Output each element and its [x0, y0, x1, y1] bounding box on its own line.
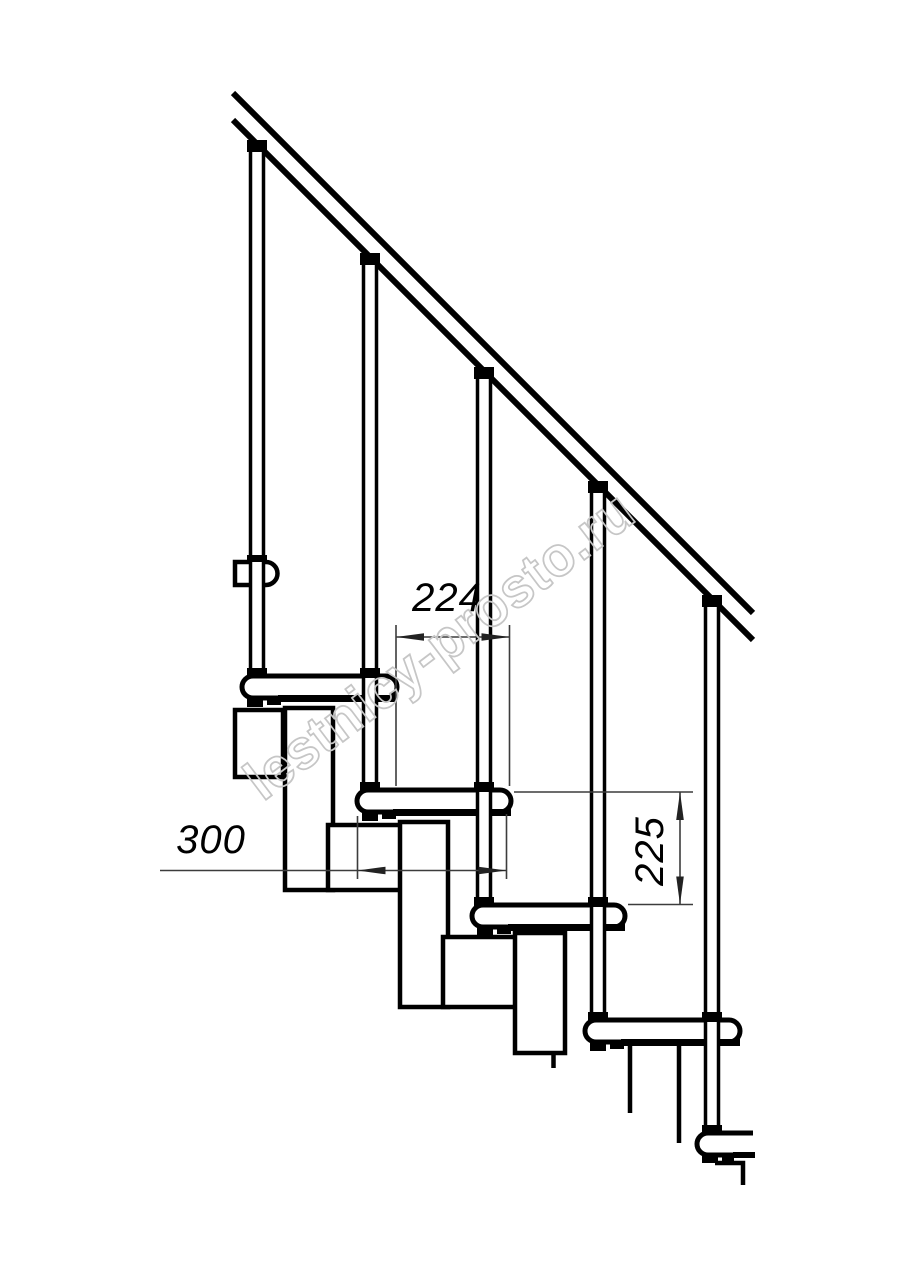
dim300-arrow-right [479, 867, 507, 875]
baluster3-foot [474, 897, 494, 906]
baluster1-bracket-collar [247, 555, 267, 562]
tread2-clamp-b [382, 811, 396, 819]
tread2-clamp-a [362, 811, 378, 821]
tread4-underband [621, 1039, 740, 1046]
baluster2-foot [360, 782, 380, 791]
tread-5-clipped [697, 1133, 753, 1155]
handrail [233, 93, 753, 640]
baluster5-foot [702, 1125, 722, 1134]
tread5-clamp-b [722, 1154, 734, 1161]
baluster-4 [592, 491, 605, 1020]
dim300-label: 300 [176, 818, 246, 862]
tread4-clamp-a [590, 1041, 606, 1051]
baluster4-tread3-collar [588, 897, 608, 907]
tread1-clamp-b [267, 697, 281, 705]
handrail-upper-line [233, 93, 753, 613]
tread1-clamp-a [247, 697, 263, 707]
module-column-under-tread3 [515, 933, 565, 1053]
staircase-technical-drawing: 224 300 225 lestnicy-prosto.ru [0, 0, 914, 1280]
handrail-lower-line [233, 120, 753, 640]
tread4-clamp-b [610, 1041, 624, 1049]
tread5-clamp-a [702, 1154, 718, 1163]
baluster1-foot [247, 668, 267, 677]
baluster4-foot [588, 1012, 608, 1021]
dim225-label: 225 [628, 816, 672, 887]
baluster1-handrail-cap [247, 140, 267, 152]
tread3-underband [508, 924, 625, 931]
baluster-1 [251, 150, 264, 676]
module-box-under-tread3 [443, 937, 518, 1007]
baluster5-tread4-collar [702, 1012, 722, 1022]
tread2-underband [393, 809, 511, 816]
tread3-clamp-b [497, 926, 511, 934]
module-box-under-tread2 [328, 825, 403, 890]
baluster-5 [706, 605, 719, 1133]
tread5-underband [733, 1152, 755, 1158]
module-hook-under-tread5 [715, 1163, 743, 1185]
baluster3-tread2-collar [474, 782, 494, 792]
baluster5-handrail-cap [702, 595, 722, 607]
dim225-arrow-top [676, 792, 684, 820]
tread3-clamp-a [477, 926, 493, 936]
baluster2-handrail-cap [360, 253, 380, 265]
dim225-arrow-bottom [676, 877, 684, 905]
watermark-text: lestnicy-prosto.ru [232, 478, 645, 811]
staircase-drawing-svg: 224 300 225 lestnicy-prosto.ru [0, 0, 914, 1280]
baluster3-handrail-cap [474, 367, 494, 379]
